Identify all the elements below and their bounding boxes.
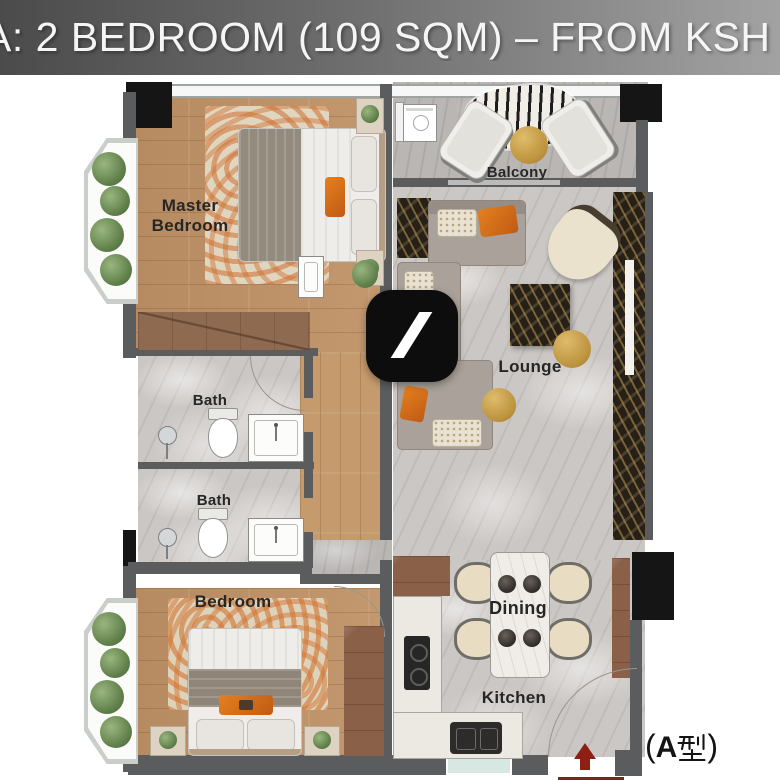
corner-column-top-right — [620, 84, 662, 122]
room-label-master-bedroom: Master Bedroom — [125, 196, 255, 235]
toilet — [198, 518, 228, 558]
page-title: A: 2 BEDROOM (109 SQM) – FROM KSH 1 — [0, 14, 780, 61]
kitchen-upper-cabinet — [393, 556, 450, 596]
room-label-bath-1: Bath — [150, 392, 270, 409]
plant-icon — [100, 648, 130, 678]
type-letter: A — [656, 731, 678, 764]
gold-pouf — [482, 388, 516, 422]
plant-icon — [100, 254, 132, 286]
room-label-dining: Dining — [458, 598, 578, 619]
nightstand — [304, 726, 340, 756]
wall-bath-right-b — [304, 432, 313, 498]
master-dresser — [298, 256, 324, 298]
room-label-bath-2: Bath — [154, 492, 274, 509]
entrance-arrow-icon — [574, 743, 596, 770]
wall-bath2-bedroom — [128, 562, 312, 574]
hallway-floor — [300, 352, 392, 542]
wall-hall-bedroom — [300, 574, 392, 584]
orange-sofa-pillow — [399, 385, 429, 423]
header-bar: A: 2 BEDROOM (109 SQM) – FROM KSH 1 — [0, 0, 780, 75]
bedside-plant-box — [356, 98, 384, 134]
kitchen-sink — [450, 722, 502, 754]
type-close-paren: ) — [707, 728, 718, 764]
plant-icon — [92, 612, 126, 646]
cooktop — [404, 636, 430, 690]
wall-right-lounge — [645, 192, 653, 540]
dining-chair — [546, 618, 592, 660]
place-setting — [498, 575, 516, 593]
master-bed — [238, 128, 386, 262]
tv-console — [625, 260, 634, 375]
room-label-kitchen: Kitchen — [454, 688, 574, 708]
balcony-round-table — [510, 126, 548, 164]
toilet — [208, 418, 238, 458]
room-label-bedroom: Bedroom — [173, 592, 293, 612]
floor-plan-page: A: 2 BEDROOM (109 SQM) – FROM KSH 1 — [0, 0, 780, 780]
lounge-side-table — [397, 198, 431, 258]
wall-bath-divider — [138, 462, 314, 469]
plant-icon — [352, 260, 378, 288]
master-closet — [138, 312, 310, 350]
plant-icon — [90, 680, 124, 714]
room-label-balcony: Balcony — [457, 164, 577, 181]
place-setting — [523, 629, 541, 647]
washing-machine — [403, 104, 437, 142]
dining-tall-cabinet — [612, 558, 630, 678]
place-setting — [523, 575, 541, 593]
wall-bath1-right-a — [304, 352, 313, 398]
nightstand — [150, 726, 186, 756]
place-setting — [498, 629, 516, 647]
bath1-vanity-sink — [248, 414, 304, 462]
lounge-sofa-top — [428, 200, 526, 266]
orange-sofa-pillow — [477, 204, 519, 237]
planter-bay-bottom — [84, 598, 138, 764]
logo-slash-icon — [391, 312, 433, 358]
shower-stem — [166, 545, 168, 559]
plant-icon — [90, 218, 124, 252]
watermark-logo — [366, 290, 458, 382]
bath2-vanity-sink — [248, 518, 304, 562]
room-label-lounge: Lounge — [470, 357, 590, 377]
plant-icon — [100, 716, 132, 748]
orange-bed-runner — [219, 695, 273, 715]
type-open-paren: ( — [645, 728, 656, 764]
kitchen-window — [446, 757, 512, 775]
plant-icon — [92, 152, 126, 186]
plan-type-label: (A ) — [645, 728, 718, 765]
hallway-tile — [300, 540, 392, 574]
top-window-wall — [128, 84, 660, 98]
shower-stem — [166, 443, 168, 459]
kanji-type-glyph — [677, 731, 707, 761]
column-dining-right — [632, 552, 674, 620]
orange-throw-pillow — [325, 177, 345, 217]
bedroom-bed — [188, 628, 302, 756]
bedroom-wardrobe — [344, 626, 384, 756]
